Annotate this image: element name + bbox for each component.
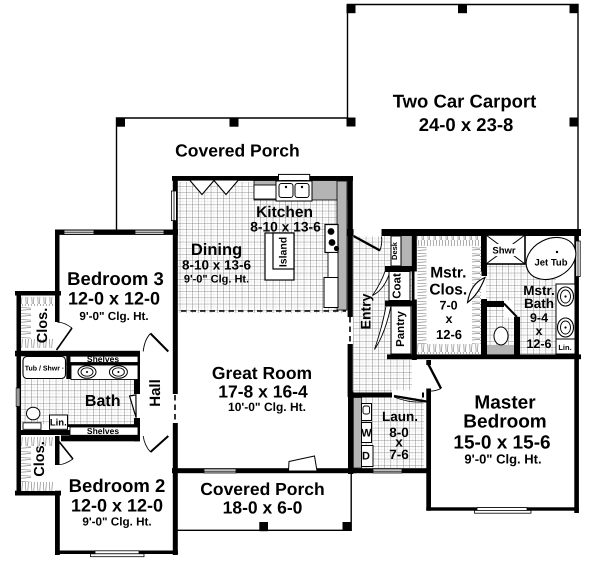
- svg-text:Bedroom: Bedroom: [463, 412, 546, 433]
- svg-text:x: x: [446, 312, 453, 326]
- svg-text:18-0 x 6-0: 18-0 x 6-0: [223, 498, 303, 518]
- svg-text:D: D: [362, 451, 370, 463]
- svg-text:Clos.: Clos.: [35, 308, 51, 343]
- svg-text:9'-0" Clg. Ht.: 9'-0" Clg. Ht.: [464, 452, 541, 467]
- svg-text:Bedroom 2: Bedroom 2: [69, 475, 166, 496]
- svg-text:Entry: Entry: [358, 293, 374, 329]
- svg-text:9'-0" Clg. Ht.: 9'-0" Clg. Ht.: [82, 515, 151, 528]
- svg-text:12-0 x 12-0: 12-0 x 12-0: [71, 496, 163, 516]
- svg-text:Lin.: Lin.: [50, 417, 67, 428]
- svg-text:W: W: [361, 428, 372, 440]
- svg-text:12-6: 12-6: [436, 327, 462, 342]
- svg-text:8-10 x 13-6: 8-10 x 13-6: [182, 258, 252, 273]
- svg-text:8-10 x 13-6: 8-10 x 13-6: [250, 219, 321, 234]
- svg-text:Island: Island: [278, 237, 290, 267]
- svg-text:Shwr: Shwr: [492, 246, 516, 257]
- svg-text:7-6: 7-6: [389, 447, 409, 462]
- svg-text:Great Room: Great Room: [212, 363, 312, 383]
- svg-text:Clos.: Clos.: [32, 441, 48, 476]
- svg-text:Covered Porch: Covered Porch: [175, 141, 299, 161]
- svg-text:Dining: Dining: [191, 241, 242, 259]
- svg-text:Tub / Shwr ·: Tub / Shwr ·: [25, 365, 65, 373]
- svg-text:Laun.: Laun.: [382, 409, 418, 424]
- svg-text:Bedroom 3: Bedroom 3: [67, 268, 164, 289]
- svg-text:Shelves: Shelves: [87, 354, 119, 364]
- svg-text:17-8 x 16-4: 17-8 x 16-4: [218, 382, 308, 402]
- svg-text:Coat: Coat: [392, 273, 404, 299]
- svg-text:Hall: Hall: [147, 379, 164, 407]
- svg-text:Bath: Bath: [85, 393, 121, 410]
- svg-text:9-4: 9-4: [530, 311, 548, 325]
- svg-text:9'-0" Clg. Ht.: 9'-0" Clg. Ht.: [79, 310, 148, 323]
- svg-text:7-0: 7-0: [440, 299, 458, 313]
- svg-text:Clos.: Clos.: [429, 281, 467, 298]
- svg-text:24-0 x 23-8: 24-0 x 23-8: [419, 114, 514, 135]
- svg-text:Mstr.: Mstr.: [430, 264, 466, 281]
- svg-text:15-0 x 15-6: 15-0 x 15-6: [453, 433, 550, 454]
- svg-text:9'-0" Clg. Ht.: 9'-0" Clg. Ht.: [184, 273, 249, 285]
- svg-text:Two Car Carport: Two Car Carport: [393, 91, 537, 112]
- svg-text:Jet Tub: Jet Tub: [534, 258, 567, 269]
- svg-text:12-6: 12-6: [526, 337, 551, 351]
- svg-text:10'-0" Clg. Ht.: 10'-0" Clg. Ht.: [228, 400, 306, 414]
- svg-text:Bath: Bath: [524, 296, 554, 311]
- svg-text:Desk: Desk: [390, 241, 399, 260]
- svg-text:Pantry: Pantry: [395, 311, 407, 347]
- svg-text:12-0 x 12-0: 12-0 x 12-0: [68, 289, 160, 309]
- svg-text:Shelves: Shelves: [87, 426, 119, 436]
- svg-text:x: x: [536, 324, 543, 338]
- svg-text:Lin.: Lin.: [558, 343, 571, 352]
- svg-text:Covered Porch: Covered Porch: [200, 479, 324, 499]
